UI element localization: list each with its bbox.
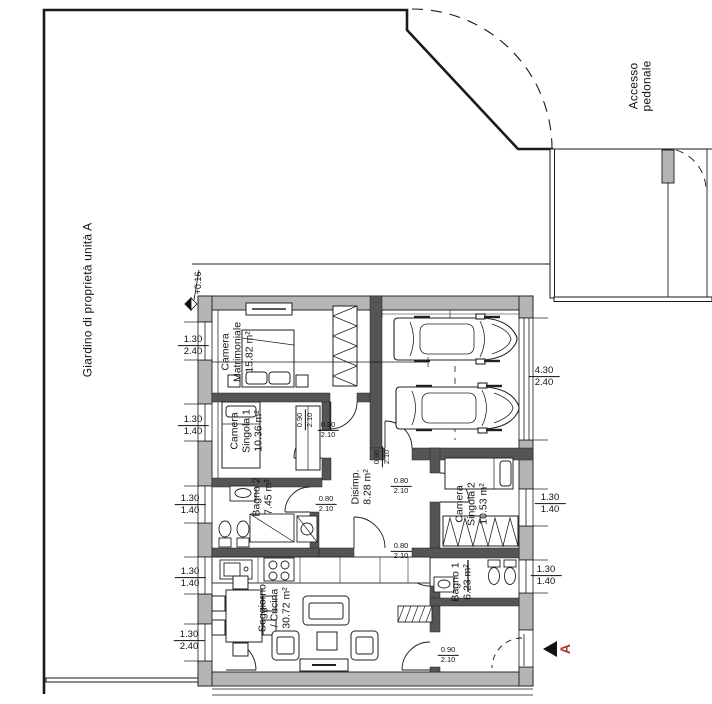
coffee-table: [317, 632, 337, 650]
door-dim-3: 0.902.10: [373, 447, 391, 468]
wardrobe-matrimoniale: [333, 306, 357, 386]
door-cucina: [354, 517, 385, 548]
room-label-camera-singola-2: Camera Singola 2 10.53 m²: [454, 482, 489, 526]
window-dim-left-2: 1.301.40: [178, 414, 209, 438]
radiator: [398, 606, 432, 622]
garden-label: Giardino di proprietà unità A: [81, 223, 94, 378]
door-dim-1: 0.902.10: [296, 410, 314, 431]
window-dim-left-5: 1.302.40: [174, 629, 205, 653]
door-dim-7: 0.902.10: [438, 646, 459, 664]
door-bagno-2: [285, 487, 310, 512]
pedestrian-access-label: Accesso pedonale: [628, 61, 655, 112]
window-dim-left-1: 1.302.40: [178, 334, 209, 358]
room-label-bagno-2: Bagno 2 7.45 m²: [251, 477, 275, 516]
window-dim-left-3: 1.301.40: [175, 493, 206, 517]
car-2: [396, 383, 519, 433]
window-dim-right-1: 1.301.40: [535, 492, 566, 516]
door-dim-2: 0.802.10: [318, 421, 339, 439]
window-dim-left-4: 1.301.40: [175, 566, 206, 590]
garage-door-dim: 4.302.40: [529, 365, 560, 389]
level-marker-label: +0.16: [193, 272, 203, 295]
door-dim-4: 0.802.10: [391, 477, 412, 495]
door-dim-6: 0.802.10: [391, 542, 412, 560]
armchair-1: [272, 631, 299, 660]
room-label-disimpegno: Disimp. 8.28 m²: [350, 469, 374, 505]
entrance-door-opening: [519, 630, 533, 667]
room-label-camera-singola-1: Camera Singola 1 10.36 m²: [229, 409, 264, 453]
room-label-camera-matrimoniale: Camera Matrimoniale 15.82 m²: [220, 322, 255, 382]
room-label-bagno-1: Bagno 1 6.23 m²: [450, 562, 474, 601]
tv-stand: [300, 659, 348, 671]
door-soggiorno: [402, 642, 430, 670]
window-dim-right-2: 1.301.40: [531, 564, 562, 588]
sofa: [303, 596, 349, 625]
room-label-soggiorno-cucina: Soggiorno / Cucina 30.72 m²: [257, 584, 292, 632]
floor-plan-drawing: Giardino di proprietà unità A Accesso pe…: [0, 0, 712, 704]
plan-linework: [0, 0, 712, 704]
stove: [264, 558, 294, 581]
car-1: [394, 314, 517, 364]
armchair-2: [351, 631, 378, 660]
door-dim-5: 0.802.10: [316, 495, 337, 513]
section-arrow-icon: [543, 641, 557, 657]
window-right-1: [519, 489, 533, 526]
furniture-soggiorno: [212, 576, 378, 671]
section-marker-label: A: [557, 644, 573, 654]
door-entrance-dashed: [492, 638, 522, 668]
